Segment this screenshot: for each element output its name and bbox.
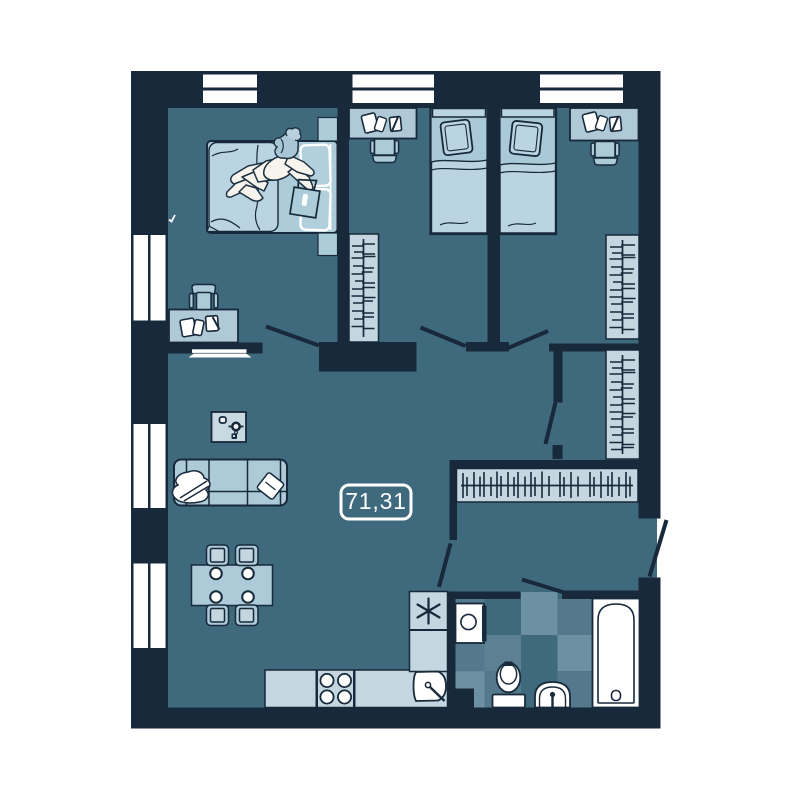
svg-text:71,31: 71,31 [345, 488, 407, 514]
